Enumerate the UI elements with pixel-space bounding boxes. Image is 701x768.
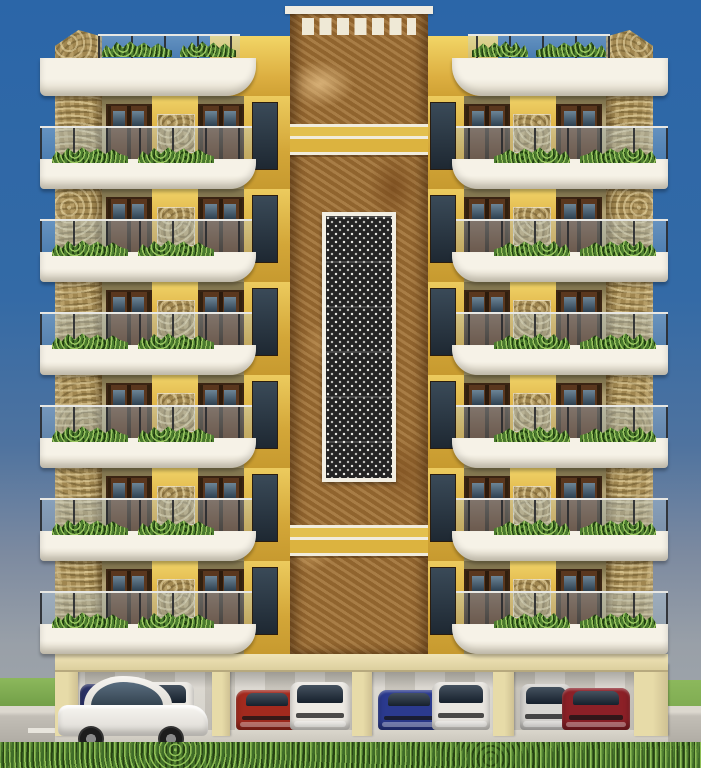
balcony-slab (452, 252, 668, 282)
door-glass-pane (583, 390, 595, 405)
car-windshield (526, 687, 566, 704)
car-bumper (435, 721, 486, 727)
door-glass-pane (583, 297, 595, 312)
door-glass-pane (564, 576, 576, 591)
door-glass-pane (132, 204, 144, 219)
balcony-slab (452, 438, 668, 468)
door-glass-pane (583, 111, 595, 126)
door-glass-pane (113, 297, 125, 312)
door-glass-pane (132, 576, 144, 591)
door-glass-pane (472, 297, 484, 312)
door-glass-pane (113, 483, 125, 498)
door-glass-pane (113, 204, 125, 219)
car-windshield (246, 693, 288, 706)
parking-pillar-2 (212, 664, 230, 736)
door-glass-pane (224, 390, 236, 405)
balcony-slab (452, 345, 668, 375)
door-glass-pane (205, 204, 217, 219)
door-glass-pane (224, 297, 236, 312)
parked-car-darkred-sedan (562, 688, 630, 730)
door-glass-pane (472, 204, 484, 219)
door-glass-pane (491, 483, 503, 498)
parked-car-blue-sedan (378, 690, 440, 730)
door-glass-pane (132, 111, 144, 126)
parking-pillar-3 (352, 664, 372, 736)
car-bumper (294, 721, 347, 727)
door-glass-pane (491, 297, 503, 312)
parked-car-red-sedan (236, 690, 298, 730)
car-windshield (297, 685, 343, 703)
door-glass-pane (472, 390, 484, 405)
building-right-wing (416, 34, 668, 654)
door-glass-pane (583, 483, 595, 498)
door-glass-pane (564, 483, 576, 498)
jali-lattice-panel (322, 212, 396, 482)
door-glass-pane (205, 483, 217, 498)
car-bumper (240, 722, 295, 727)
door-glass-pane (132, 390, 144, 405)
parking-pillar-5 (634, 664, 668, 736)
door-glass-pane (113, 111, 125, 126)
door-glass-pane (564, 111, 576, 126)
door-glass-pane (491, 576, 503, 591)
car-windshield (388, 693, 430, 706)
balcony-slab (40, 531, 256, 561)
parking-pillar-4 (493, 664, 514, 736)
parked-car-white-suv-3 (432, 682, 490, 730)
door-glass-pane (583, 576, 595, 591)
car-bumper (566, 722, 626, 727)
car-grille (525, 714, 567, 719)
car-grille (569, 715, 623, 720)
door-glass-pane (472, 111, 484, 126)
balcony-slab (452, 159, 668, 189)
door-glass-pane (564, 390, 576, 405)
door-glass-pane (491, 111, 503, 126)
door-glass-pane (564, 297, 576, 312)
car-windshield (439, 685, 483, 703)
door-glass-pane (205, 297, 217, 312)
door-glass-pane (113, 390, 125, 405)
striped-band-upper (290, 124, 428, 157)
car-grille (384, 716, 434, 720)
door-glass-pane (472, 483, 484, 498)
parking-beam (55, 654, 668, 672)
door-glass-pane (224, 576, 236, 591)
balcony-slab (40, 438, 256, 468)
door-glass-pane (491, 390, 503, 405)
car-bumper (382, 722, 437, 727)
door-glass-pane (224, 483, 236, 498)
door-glass-pane (113, 576, 125, 591)
door-glass-pane (205, 111, 217, 126)
dentil-squares (302, 18, 416, 35)
balcony-slab (40, 159, 256, 189)
door-glass-pane (132, 297, 144, 312)
balcony-slab (40, 624, 256, 654)
car-grille (242, 716, 292, 720)
parapet-cap (285, 6, 433, 14)
roof-slab (40, 58, 256, 96)
door-glass-pane (205, 390, 217, 405)
building-left-wing (40, 34, 292, 654)
door-glass-pane (472, 576, 484, 591)
car-grille (296, 713, 344, 718)
balcony-slab (40, 345, 256, 375)
balcony-slab (452, 624, 668, 654)
door-glass-pane (564, 204, 576, 219)
balcony-slab (40, 252, 256, 282)
door-glass-pane (491, 204, 503, 219)
roof-slab (452, 58, 668, 96)
door-glass-pane (224, 111, 236, 126)
scene (0, 0, 701, 768)
parked-car-white-suv-2 (290, 682, 350, 730)
central-marble-tower (290, 6, 428, 654)
door-glass-pane (583, 204, 595, 219)
car-grille (438, 713, 484, 718)
hedge (0, 742, 701, 768)
door-glass-pane (132, 483, 144, 498)
striped-band-lower (290, 525, 428, 558)
balcony-slab (452, 531, 668, 561)
car-windshield (573, 691, 619, 705)
lattice-pattern (326, 216, 392, 478)
door-glass-pane (205, 576, 217, 591)
door-glass-pane (224, 204, 236, 219)
